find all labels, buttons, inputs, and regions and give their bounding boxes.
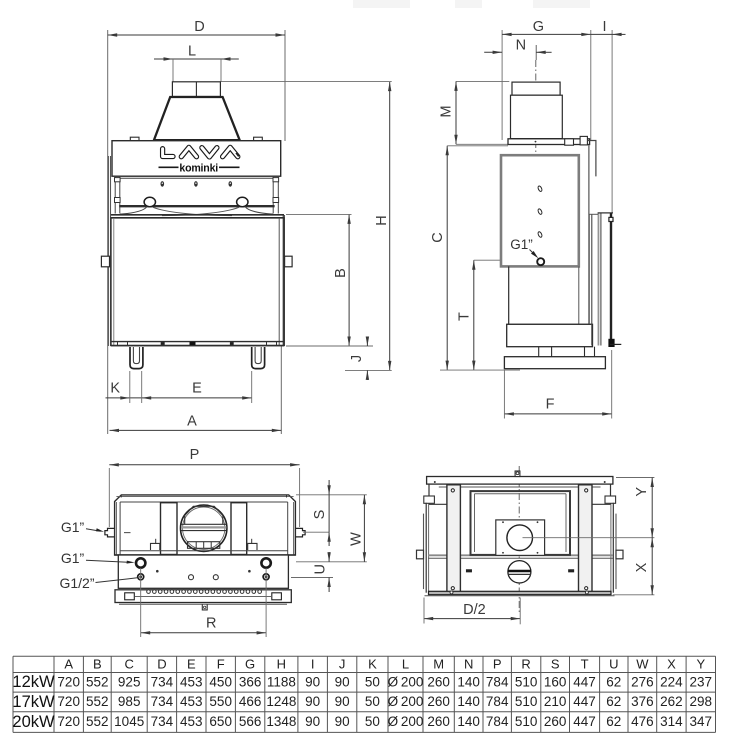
svg-text:90: 90 bbox=[335, 694, 350, 709]
svg-text:L: L bbox=[402, 656, 409, 671]
svg-text:M: M bbox=[438, 105, 454, 117]
svg-text:784: 784 bbox=[486, 714, 509, 729]
svg-text:E: E bbox=[192, 380, 202, 396]
svg-text:N: N bbox=[516, 37, 526, 53]
svg-text:210: 210 bbox=[544, 694, 567, 709]
svg-text:260: 260 bbox=[427, 714, 450, 729]
svg-text:L: L bbox=[188, 43, 196, 59]
svg-text:P: P bbox=[493, 656, 502, 671]
svg-text:E: E bbox=[187, 656, 196, 671]
svg-text:50: 50 bbox=[365, 694, 380, 709]
svg-text:kominki: kominki bbox=[179, 162, 218, 174]
svg-text:720: 720 bbox=[57, 694, 80, 709]
svg-text:F: F bbox=[546, 396, 555, 412]
svg-text:S: S bbox=[312, 510, 328, 520]
svg-text:1188: 1188 bbox=[267, 674, 296, 689]
svg-text:T: T bbox=[581, 656, 589, 671]
svg-text:F: F bbox=[217, 656, 225, 671]
svg-text:447: 447 bbox=[573, 694, 596, 709]
svg-text:476: 476 bbox=[631, 714, 654, 729]
svg-text:90: 90 bbox=[305, 674, 320, 689]
svg-text:734: 734 bbox=[151, 694, 174, 709]
svg-text:276: 276 bbox=[631, 674, 654, 689]
svg-text:347: 347 bbox=[690, 714, 713, 729]
svg-text:237: 237 bbox=[690, 674, 713, 689]
svg-text:K: K bbox=[110, 380, 120, 396]
svg-text:W: W bbox=[348, 532, 364, 546]
svg-text:720: 720 bbox=[57, 674, 80, 689]
svg-text:140: 140 bbox=[457, 714, 480, 729]
svg-text:925: 925 bbox=[118, 674, 141, 689]
svg-text:650: 650 bbox=[209, 714, 232, 729]
svg-text:376: 376 bbox=[631, 694, 654, 709]
svg-text:453: 453 bbox=[180, 674, 203, 689]
svg-text:453: 453 bbox=[180, 714, 203, 729]
svg-text:50: 50 bbox=[365, 714, 380, 729]
svg-text:H: H bbox=[374, 215, 390, 225]
svg-text:260: 260 bbox=[544, 714, 567, 729]
svg-text:447: 447 bbox=[573, 714, 596, 729]
svg-text:Y: Y bbox=[634, 487, 650, 497]
svg-text:W: W bbox=[636, 656, 649, 671]
svg-text:552: 552 bbox=[86, 674, 109, 689]
svg-text:R: R bbox=[521, 656, 530, 671]
svg-text:17kW: 17kW bbox=[12, 693, 55, 711]
svg-text:A: A bbox=[64, 656, 73, 671]
svg-text:62: 62 bbox=[606, 674, 621, 689]
svg-text:552: 552 bbox=[86, 714, 109, 729]
svg-text:N: N bbox=[464, 656, 473, 671]
svg-text:90: 90 bbox=[335, 674, 350, 689]
svg-text:G1”: G1” bbox=[61, 519, 85, 535]
svg-text:140: 140 bbox=[457, 694, 480, 709]
svg-text:566: 566 bbox=[239, 714, 262, 729]
svg-text:12kW: 12kW bbox=[12, 673, 55, 691]
svg-text:D: D bbox=[157, 656, 166, 671]
svg-text:J: J bbox=[349, 355, 365, 362]
svg-text:C: C bbox=[430, 232, 446, 242]
svg-text:720: 720 bbox=[57, 714, 80, 729]
svg-text:G: G bbox=[533, 19, 544, 35]
svg-text:H: H bbox=[277, 656, 286, 671]
svg-text:260: 260 bbox=[427, 694, 450, 709]
svg-text:366: 366 bbox=[239, 674, 262, 689]
svg-text:I: I bbox=[311, 656, 315, 671]
svg-text:140: 140 bbox=[457, 674, 480, 689]
svg-text:62: 62 bbox=[606, 714, 621, 729]
svg-text:1045: 1045 bbox=[114, 714, 144, 729]
svg-text:62: 62 bbox=[606, 694, 621, 709]
svg-text:D: D bbox=[194, 19, 204, 35]
svg-text:U: U bbox=[609, 656, 618, 671]
svg-text:G1”: G1” bbox=[61, 550, 85, 566]
svg-text:260: 260 bbox=[427, 674, 450, 689]
svg-text:X: X bbox=[667, 656, 676, 671]
svg-text:X: X bbox=[634, 562, 650, 572]
svg-text:B: B bbox=[93, 656, 102, 671]
svg-text:784: 784 bbox=[486, 694, 509, 709]
svg-text:B: B bbox=[333, 268, 349, 278]
svg-text:447: 447 bbox=[573, 674, 596, 689]
svg-text:90: 90 bbox=[335, 714, 350, 729]
svg-text:C: C bbox=[125, 656, 134, 671]
svg-text:G1/2”: G1/2” bbox=[59, 575, 94, 591]
svg-text:J: J bbox=[339, 656, 346, 671]
svg-text:1348: 1348 bbox=[266, 714, 296, 729]
svg-text:A: A bbox=[187, 413, 197, 429]
svg-text:466: 466 bbox=[239, 694, 262, 709]
svg-text:450: 450 bbox=[209, 674, 232, 689]
svg-text:734: 734 bbox=[151, 714, 174, 729]
svg-text:20kW: 20kW bbox=[12, 713, 55, 731]
svg-text:160: 160 bbox=[544, 674, 567, 689]
svg-text:298: 298 bbox=[690, 694, 713, 709]
svg-text:50: 50 bbox=[365, 674, 380, 689]
svg-text:I: I bbox=[602, 19, 606, 35]
svg-text:734: 734 bbox=[151, 674, 174, 689]
svg-text:784: 784 bbox=[486, 674, 509, 689]
svg-text:U: U bbox=[313, 564, 329, 574]
svg-text:Ø 200: Ø 200 bbox=[388, 714, 424, 729]
svg-text:M: M bbox=[433, 656, 444, 671]
svg-text:D/2: D/2 bbox=[463, 602, 486, 618]
svg-text:552: 552 bbox=[86, 694, 109, 709]
svg-text:T: T bbox=[456, 312, 472, 321]
svg-text:R: R bbox=[206, 615, 216, 631]
svg-text:P: P bbox=[190, 447, 200, 463]
svg-text:510: 510 bbox=[515, 674, 538, 689]
svg-text:90: 90 bbox=[305, 694, 320, 709]
svg-text:314: 314 bbox=[660, 714, 683, 729]
svg-text:453: 453 bbox=[180, 694, 203, 709]
svg-text:Ø 200: Ø 200 bbox=[388, 674, 424, 689]
svg-text:985: 985 bbox=[118, 694, 141, 709]
svg-text:550: 550 bbox=[209, 694, 232, 709]
svg-text:Ø 200: Ø 200 bbox=[388, 694, 424, 709]
svg-text:224: 224 bbox=[660, 674, 683, 689]
svg-text:90: 90 bbox=[305, 714, 320, 729]
svg-text:Y: Y bbox=[696, 656, 705, 671]
svg-text:S: S bbox=[551, 656, 560, 671]
svg-text:510: 510 bbox=[515, 694, 538, 709]
svg-text:K: K bbox=[368, 656, 377, 671]
svg-text:262: 262 bbox=[660, 694, 683, 709]
svg-text:510: 510 bbox=[515, 714, 538, 729]
svg-text:1248: 1248 bbox=[266, 694, 296, 709]
svg-text:G: G bbox=[245, 656, 255, 671]
